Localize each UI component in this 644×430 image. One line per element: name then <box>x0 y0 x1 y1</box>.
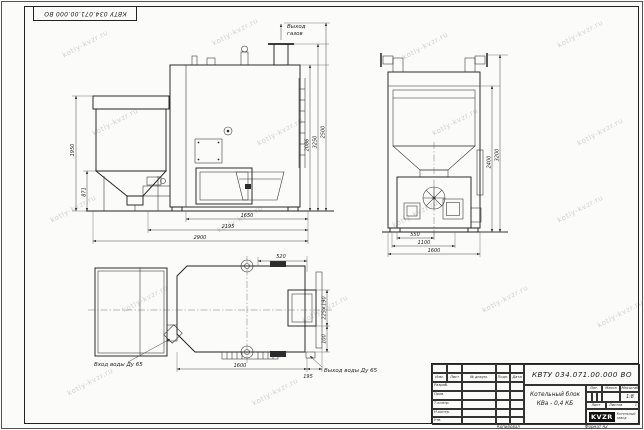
dim-plan-100: 100 <box>322 334 328 344</box>
col-data: Дата <box>510 373 524 382</box>
side-box <box>471 208 481 222</box>
row-prov: Пров. <box>432 391 462 400</box>
edge-handle-top <box>270 261 286 267</box>
foot <box>390 228 400 232</box>
water-pipe-right <box>465 53 487 72</box>
dim-side-h1: 2400 <box>487 156 493 169</box>
top-stub <box>207 58 215 65</box>
scale-value: 1:8 <box>620 392 640 402</box>
flue-opening-plan <box>288 290 316 326</box>
dim-front-2900: 2900 <box>194 235 207 241</box>
dim-side-1600: 1600 <box>428 248 441 254</box>
drawing-sheet: kotly-kvzr.ru kotly-kvzr.ru kotly-kvzr.r… <box>0 0 644 430</box>
water-outlet-stub <box>306 352 315 358</box>
hdr-sheets: Листов <box>609 404 622 408</box>
foot <box>172 207 182 211</box>
dim-plan-flue: 225×190 <box>322 296 328 319</box>
dim-plan-1600: 1600 <box>234 363 247 369</box>
sensor-stub <box>192 56 197 65</box>
col-list: Лист <box>447 373 462 382</box>
dim-front-h1: 2086 <box>305 139 311 152</box>
dim-side-h2: 3200 <box>495 149 501 162</box>
dim-plan-520: 520 <box>276 254 286 260</box>
dim-side-1100: 1100 <box>418 240 431 246</box>
plan-dimensions: 520 225×190 100 1600 195 <box>177 254 330 380</box>
safety-valve <box>241 46 248 65</box>
doc-number: КВТУ 034.071.00.000 ВО <box>524 364 640 385</box>
dim-front-2195: 2195 <box>222 224 235 230</box>
front-dimensions-left: 1950 871 <box>70 96 96 211</box>
hdr-lit: Лит. <box>586 385 602 392</box>
row-tkontr: Т.контр. <box>432 400 462 409</box>
footer-format: Формат А2 <box>585 424 608 429</box>
furnace-door <box>196 168 252 204</box>
side-dimensions-right: 2400 3200 <box>480 55 508 232</box>
gas-outlet-label-2: газов <box>287 31 303 37</box>
sight-glass <box>224 127 232 135</box>
hatch-left <box>404 203 420 219</box>
foot <box>468 228 478 232</box>
dim-front-1950: 1950 <box>70 144 76 157</box>
ash-bin <box>236 172 284 200</box>
hdr-sheet: Лист <box>586 402 606 409</box>
logo-caption-2: завод <box>617 417 636 421</box>
hdr-scale: Масштаб <box>620 385 640 392</box>
fuel-hopper-plan <box>95 268 167 356</box>
side-view: 550 1100 1600 2400 3200 <box>381 53 508 257</box>
title-block: Изм. Лист № докум. Подп. Дата Разраб. Пр… <box>431 363 639 424</box>
product-name: Котельный блок КВа - 0,4 КБ <box>524 385 586 425</box>
kvzr-logo: KVZR <box>589 412 615 422</box>
inlet-leader <box>128 339 170 362</box>
dim-front-h3: 2500 <box>321 126 327 139</box>
foot <box>288 207 298 211</box>
plan-view: Вход воды Ду 65 Выход воды Ду 65 520 225… <box>88 254 378 380</box>
row-utv: Утв. <box>432 417 462 425</box>
fuel-hopper-front <box>93 96 169 211</box>
sheets-value: 1 <box>635 404 637 408</box>
row-nkontr: Н.контр. <box>432 409 462 417</box>
water-inlet-label: Вход воды Ду 65 <box>94 362 143 368</box>
door-handle <box>245 184 251 189</box>
gas-outlet-label-1: Выход <box>287 24 306 30</box>
col-podp: Подп. <box>496 373 510 382</box>
product-name-line1: Котельный блок <box>530 391 580 400</box>
dim-plan-195: 195 <box>303 374 313 380</box>
dim-side-550: 550 <box>410 232 420 238</box>
auger-feeder <box>143 177 170 196</box>
outlet-leader <box>310 356 322 367</box>
boiler-body-plan <box>177 266 305 352</box>
logo-caption: Котельный завод <box>617 413 636 421</box>
front-dimensions-bottom: 1650 2195 2900 <box>93 211 308 244</box>
hatch-right <box>443 199 463 219</box>
control-panel <box>195 139 222 163</box>
col-izm: Изм. <box>432 373 447 382</box>
row-razrab: Разраб. <box>432 382 462 391</box>
grate-strip <box>222 352 278 359</box>
footer-kopiroval: Копировал <box>497 424 520 429</box>
water-pipe-left <box>381 53 403 72</box>
front-dimensions-right: 2086 3250 2500 <box>284 23 330 211</box>
dim-front-871: 871 <box>82 187 88 197</box>
dim-front-1650: 1650 <box>241 213 254 219</box>
col-docnum: № докум. <box>462 373 496 382</box>
hdr-mass: Масса <box>602 385 620 392</box>
front-view: Выход газов <box>70 23 334 244</box>
sheets-cell: Листов 1 <box>606 402 640 409</box>
gas-outlet-stub <box>268 44 294 65</box>
water-outlet-label: Выход воды Ду 65 <box>324 368 378 374</box>
product-name-line2: КВа - 0,4 КБ <box>537 400 574 409</box>
company-cell: KVZR Котельный завод <box>586 409 640 425</box>
side-dimensions-bottom: 550 1100 1600 <box>388 232 480 257</box>
dim-front-h2: 3250 <box>313 136 319 149</box>
auger-connector-plan <box>167 325 177 341</box>
